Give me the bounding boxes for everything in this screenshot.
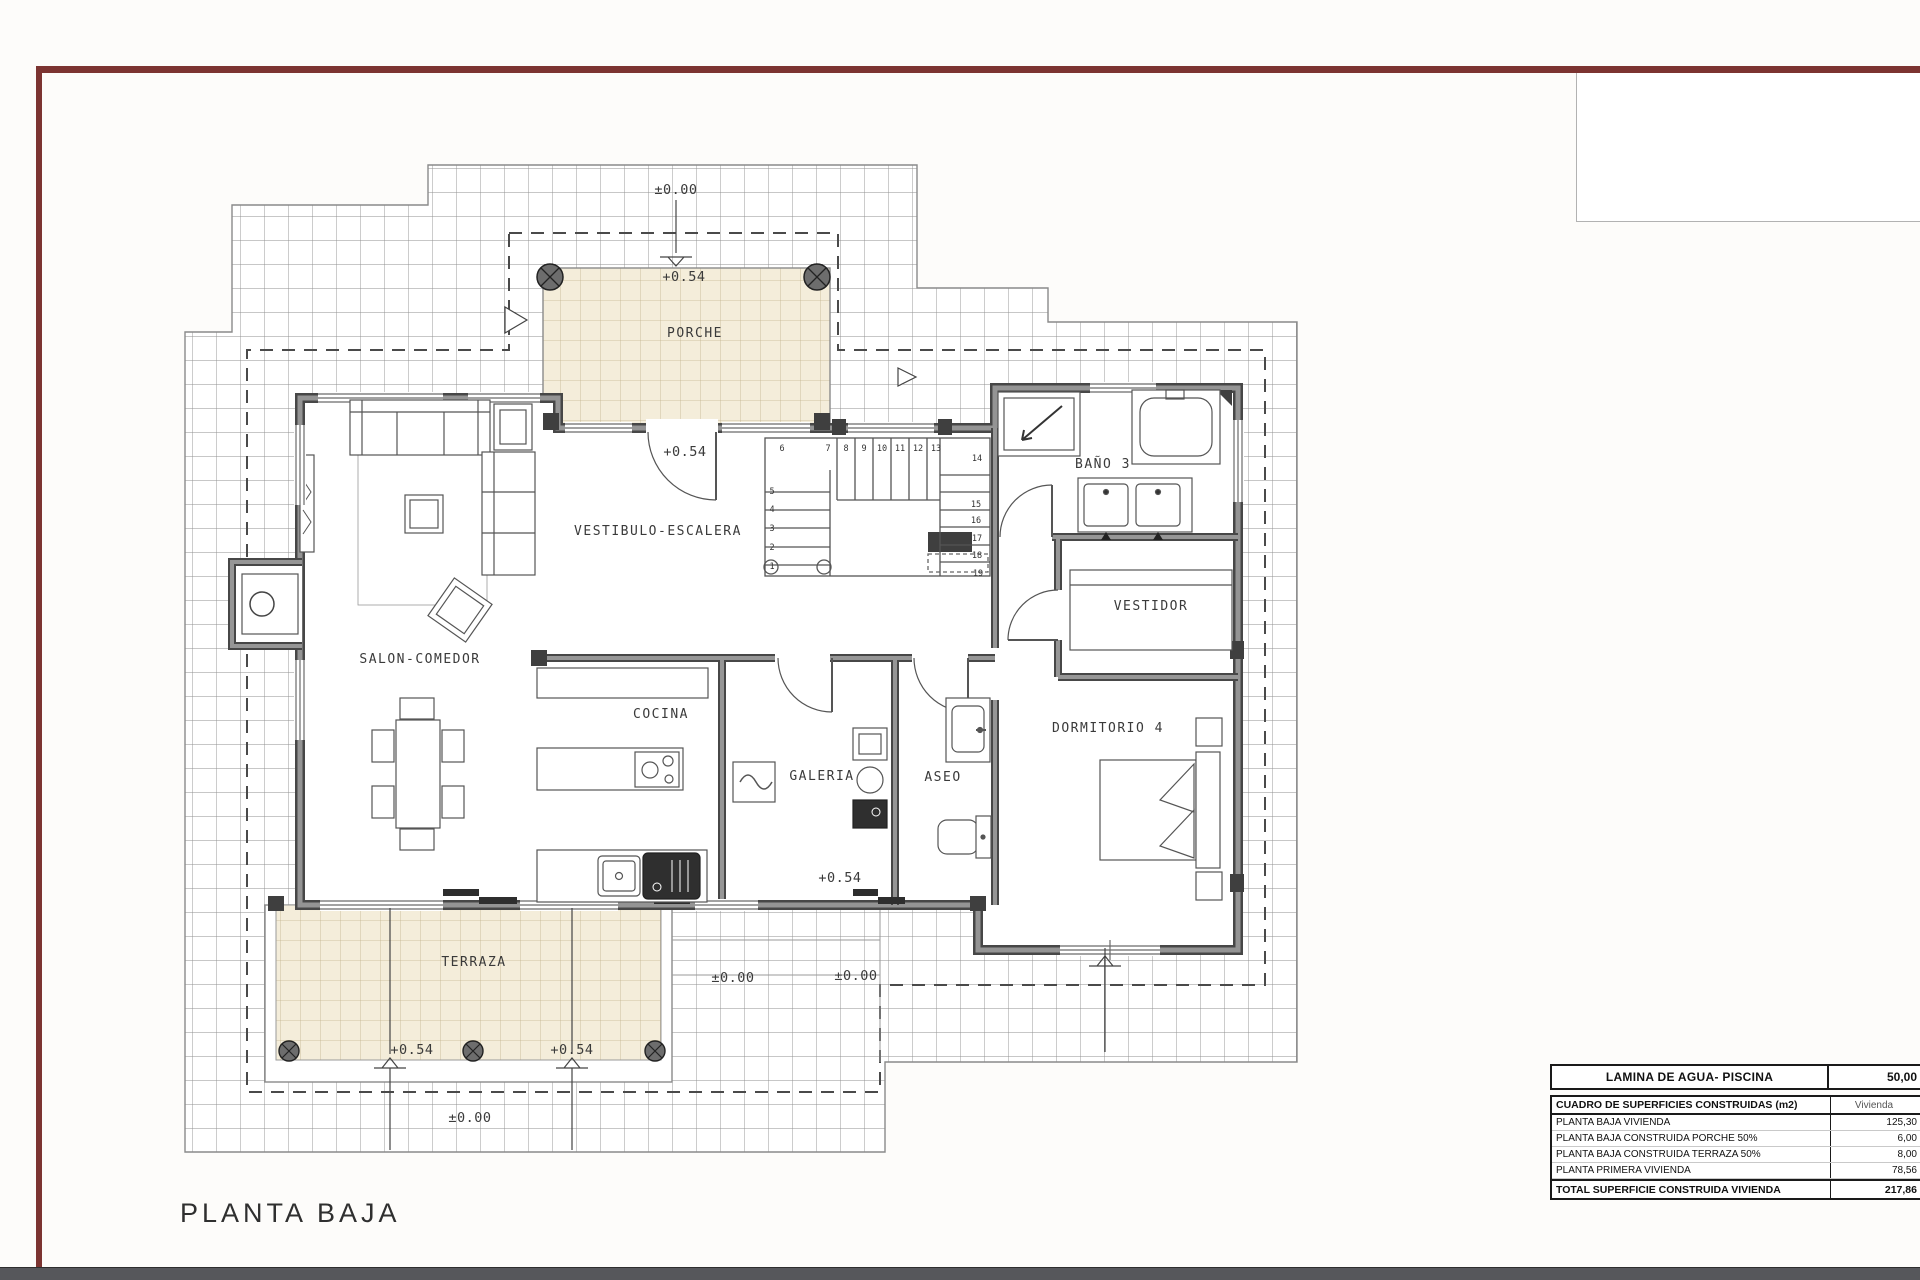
headboard — [1196, 752, 1220, 868]
dining-table — [396, 720, 440, 828]
svg-text:11: 11 — [895, 444, 905, 454]
mattress — [1100, 760, 1196, 860]
nightstand — [1196, 872, 1222, 900]
washbasin-icon — [946, 698, 990, 762]
svg-text:19: 19 — [973, 569, 983, 579]
svg-text:7: 7 — [825, 444, 830, 454]
bathtub-icon — [1132, 390, 1220, 464]
room-label-cocina: COCINA — [633, 707, 689, 722]
dining-chair — [372, 786, 394, 818]
table-row: PLANTA BAJA CONSTRUIDA PORCHE 50% 6,00 — [1552, 1131, 1920, 1147]
porch-column-icon — [804, 264, 830, 290]
svg-text:18: 18 — [972, 551, 982, 561]
table-row: PLANTA PRIMERA VIVIENDA 78,56 — [1552, 1163, 1920, 1179]
svg-text:8: 8 — [843, 444, 848, 454]
pool-area-table: LAMINA DE AGUA- PISCINA 50,00 — [1550, 1064, 1920, 1090]
table-row: PLANTA BAJA VIVIENDA 125,30 — [1552, 1115, 1920, 1131]
page-title: PLANTA BAJA — [180, 1198, 401, 1229]
dining-chair — [372, 730, 394, 762]
terrace-column-icon — [279, 1041, 299, 1061]
table-total-row: TOTAL SUPERFICIE CONSTRUIDA VIVIENDA 217… — [1552, 1179, 1920, 1198]
dining-chair — [442, 786, 464, 818]
table-header-value: Vivienda — [1831, 1097, 1920, 1113]
microwave-icon — [853, 728, 887, 760]
level-mark: ±0.00 — [711, 970, 754, 986]
porch-slab — [537, 264, 830, 428]
level-mark: +0.54 — [550, 1042, 593, 1058]
svg-text:9: 9 — [861, 444, 866, 454]
kitchen-sink-icon — [598, 856, 640, 896]
level-mark: +0.54 — [390, 1042, 433, 1058]
level-mark: +0.54 — [662, 269, 705, 285]
level-mark: +0.54 — [818, 870, 861, 886]
sofa-l-section — [482, 452, 535, 575]
room-label-terraza: TERRAZA — [441, 955, 506, 970]
level-mark: +0.54 — [663, 444, 706, 460]
shower-icon — [998, 392, 1080, 456]
svg-text:13: 13 — [931, 444, 941, 454]
drawing-sheet: 1 2 3 4 5 6 7 8 9 10 11 12 13 14 15 16 1… — [0, 0, 1920, 1280]
title-block-blank — [1576, 73, 1920, 222]
room-label-aseo: ASEO — [924, 770, 961, 785]
pool-table-label: LAMINA DE AGUA- PISCINA — [1552, 1066, 1829, 1088]
svg-text:10: 10 — [877, 444, 887, 454]
svg-text:17: 17 — [972, 534, 982, 544]
table-header-label: CUADRO DE SUPERFICIES CONSTRUIDAS (m2) — [1552, 1097, 1831, 1113]
table-row: PLANTA BAJA CONSTRUIDA TERRAZA 50% 8,00 — [1552, 1147, 1920, 1163]
sheet-bottom-bar — [0, 1267, 1920, 1280]
svg-text:15: 15 — [971, 500, 981, 510]
room-label-porche: PORCHE — [667, 326, 723, 341]
surface-tables: LAMINA DE AGUA- PISCINA 50,00 CUADRO DE … — [1550, 1064, 1920, 1200]
dining-chair — [442, 730, 464, 762]
sofa — [350, 400, 490, 455]
built-surface-table: CUADRO DE SUPERFICIES CONSTRUIDAS (m2) V… — [1550, 1095, 1920, 1200]
svg-text:5: 5 — [769, 487, 774, 497]
dishwasher-icon — [643, 853, 700, 899]
kitchen-island — [537, 748, 683, 790]
kitchen-counter-top — [537, 668, 708, 698]
svg-text:4: 4 — [769, 505, 774, 515]
boiler-icon — [853, 800, 887, 828]
terrace-column-icon — [645, 1041, 665, 1061]
dining-chair — [400, 698, 434, 719]
nightstand — [1196, 718, 1222, 746]
svg-text:14: 14 — [972, 454, 982, 464]
coffee-table — [405, 495, 443, 533]
room-label-salon: SALON-COMEDOR — [359, 652, 480, 667]
room-label-bano3: BAÑO 3 — [1075, 456, 1131, 472]
dining-chair — [400, 829, 434, 850]
level-mark: ±0.00 — [448, 1110, 491, 1126]
level-mark: ±0.00 — [834, 968, 877, 984]
terrace-column-icon — [463, 1041, 483, 1061]
svg-text:12: 12 — [913, 444, 923, 454]
toilet-icon — [938, 816, 991, 858]
armchair — [494, 404, 532, 450]
svg-text:16: 16 — [971, 516, 981, 526]
room-label-galeria: GALERIA — [789, 769, 854, 784]
svg-text:1: 1 — [769, 562, 774, 572]
room-label-vestibulo: VESTIBULO-ESCALERA — [574, 524, 742, 539]
house-outer-walls — [300, 388, 1238, 950]
pool-table-value: 50,00 — [1829, 1066, 1920, 1088]
room-label-vestidor: VESTIDOR — [1114, 599, 1189, 614]
room-label-dormitorio4: DORMITORIO 4 — [1052, 721, 1164, 736]
level-mark: ±0.00 — [654, 182, 697, 198]
svg-text:3: 3 — [769, 524, 774, 534]
table-header-row: CUADRO DE SUPERFICIES CONSTRUIDAS (m2) V… — [1552, 1097, 1920, 1115]
washing-machine-icon — [733, 762, 775, 802]
svg-text:2: 2 — [769, 543, 774, 553]
svg-text:6: 6 — [779, 444, 784, 454]
porch-column-icon — [537, 264, 563, 290]
